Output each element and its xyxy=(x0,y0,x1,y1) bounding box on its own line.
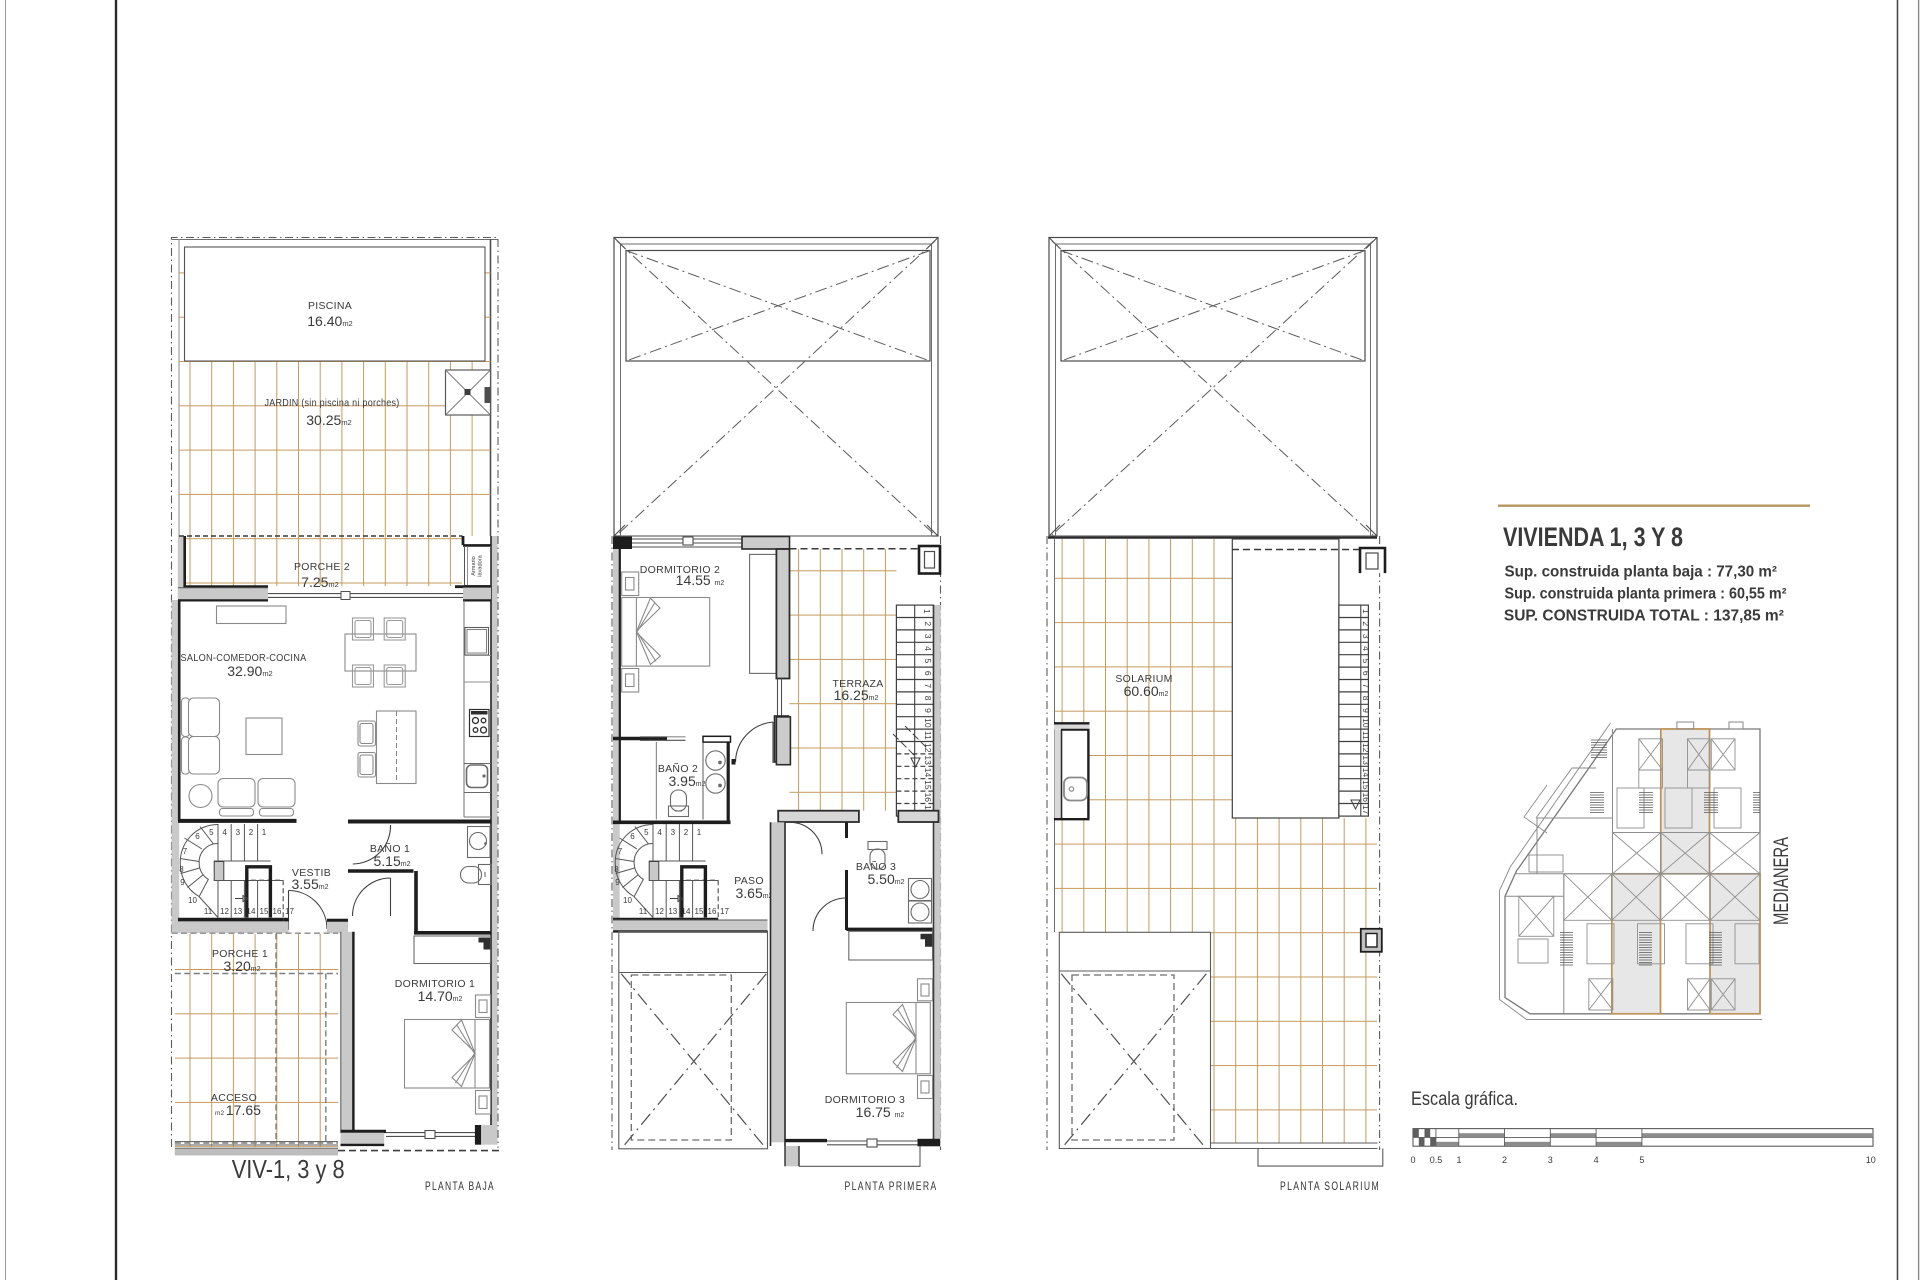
svg-text:15: 15 xyxy=(1361,780,1371,790)
svg-text:1: 1 xyxy=(262,828,267,837)
svg-text:10: 10 xyxy=(1361,718,1371,728)
svg-text:PORCHE 2: PORCHE 2 xyxy=(294,561,350,573)
svg-text:1: 1 xyxy=(922,609,932,614)
svg-text:15: 15 xyxy=(923,780,933,790)
svg-text:14: 14 xyxy=(1361,768,1371,778)
svg-text:7: 7 xyxy=(923,683,933,688)
svg-text:8: 8 xyxy=(923,696,933,701)
svg-text:PISCINA: PISCINA xyxy=(308,300,352,312)
svg-text:16: 16 xyxy=(273,907,282,916)
svg-text:9: 9 xyxy=(180,878,185,887)
svg-text:0: 0 xyxy=(1410,1155,1415,1165)
svg-text:PLANTA PRIMERA: PLANTA PRIMERA xyxy=(845,1181,938,1193)
svg-text:10: 10 xyxy=(188,896,197,905)
svg-text:12: 12 xyxy=(1361,743,1371,753)
svg-text:4: 4 xyxy=(222,828,227,837)
svg-text:1: 1 xyxy=(1456,1155,1461,1165)
svg-text:VIVIENDA 1, 3 Y 8: VIVIENDA 1, 3 Y 8 xyxy=(1503,522,1683,552)
svg-text:PLANTA BAJA: PLANTA BAJA xyxy=(425,1181,495,1193)
svg-text:5: 5 xyxy=(1361,659,1371,664)
svg-text:8: 8 xyxy=(1361,696,1371,701)
svg-text:7: 7 xyxy=(1361,683,1371,688)
svg-text:14: 14 xyxy=(923,768,933,778)
svg-text:5: 5 xyxy=(209,828,214,837)
svg-text:3: 3 xyxy=(236,828,241,837)
svg-text:Sup. construida planta baja :: Sup. construida planta baja : 77,30 m² xyxy=(1505,564,1778,581)
svg-text:10: 10 xyxy=(1866,1155,1876,1165)
svg-text:2: 2 xyxy=(1502,1155,1507,1165)
svg-text:11: 11 xyxy=(204,907,213,916)
svg-text:8: 8 xyxy=(179,865,184,874)
svg-text:12: 12 xyxy=(923,743,933,753)
svg-text:Armario: Armario xyxy=(471,556,477,576)
svg-text:3: 3 xyxy=(1548,1155,1553,1165)
svg-text:PLANTA SOLARIUM: PLANTA SOLARIUM xyxy=(1280,1181,1380,1193)
svg-text:4: 4 xyxy=(1594,1155,1599,1165)
svg-text:9: 9 xyxy=(1361,708,1371,713)
svg-text:JARDIN (sin piscina ni porches: JARDIN (sin piscina ni porches) xyxy=(265,397,400,409)
svg-text:17: 17 xyxy=(285,907,294,916)
svg-text:9: 9 xyxy=(923,708,933,713)
svg-text:5: 5 xyxy=(923,659,933,664)
svg-text:14: 14 xyxy=(247,907,256,916)
svg-text:13: 13 xyxy=(923,755,933,765)
svg-text:6: 6 xyxy=(1361,671,1371,676)
svg-text:Escala gráfica.: Escala gráfica. xyxy=(1411,1089,1518,1110)
svg-text:16: 16 xyxy=(1361,793,1371,803)
svg-text:6: 6 xyxy=(195,832,200,841)
svg-text:3: 3 xyxy=(1361,634,1371,639)
svg-text:7: 7 xyxy=(183,847,188,856)
svg-text:0.5: 0.5 xyxy=(1430,1155,1443,1165)
svg-text:MEDIANERA: MEDIANERA xyxy=(1770,837,1793,925)
svg-text:1: 1 xyxy=(1361,609,1371,614)
svg-text:11: 11 xyxy=(1361,731,1371,740)
svg-text:16: 16 xyxy=(923,793,933,803)
svg-text:3: 3 xyxy=(923,634,933,639)
svg-text:15: 15 xyxy=(260,907,269,916)
svg-text:17: 17 xyxy=(1361,805,1371,815)
svg-text:6: 6 xyxy=(923,671,933,676)
svg-text:2: 2 xyxy=(1361,621,1371,626)
svg-text:10: 10 xyxy=(923,718,933,728)
svg-text:11: 11 xyxy=(923,731,933,740)
svg-text:SUP. CONSTRUIDA TOTAL : 137,85: SUP. CONSTRUIDA TOTAL : 137,85 m² xyxy=(1504,608,1784,625)
svg-text:5: 5 xyxy=(1639,1155,1644,1165)
svg-text:2: 2 xyxy=(923,621,933,626)
svg-text:4: 4 xyxy=(1361,646,1371,651)
svg-text:Sup. construida planta primera: Sup. construida planta primera : 60,55 m… xyxy=(1505,586,1787,603)
svg-text:12: 12 xyxy=(220,907,229,916)
svg-text:lavadora: lavadora xyxy=(478,554,484,576)
svg-text:13: 13 xyxy=(1361,755,1371,765)
svg-text:13: 13 xyxy=(233,907,242,916)
svg-text:2: 2 xyxy=(249,828,254,837)
svg-text:4: 4 xyxy=(923,646,933,651)
svg-text:VIV-1, 3 y 8: VIV-1, 3 y 8 xyxy=(232,1154,345,1184)
